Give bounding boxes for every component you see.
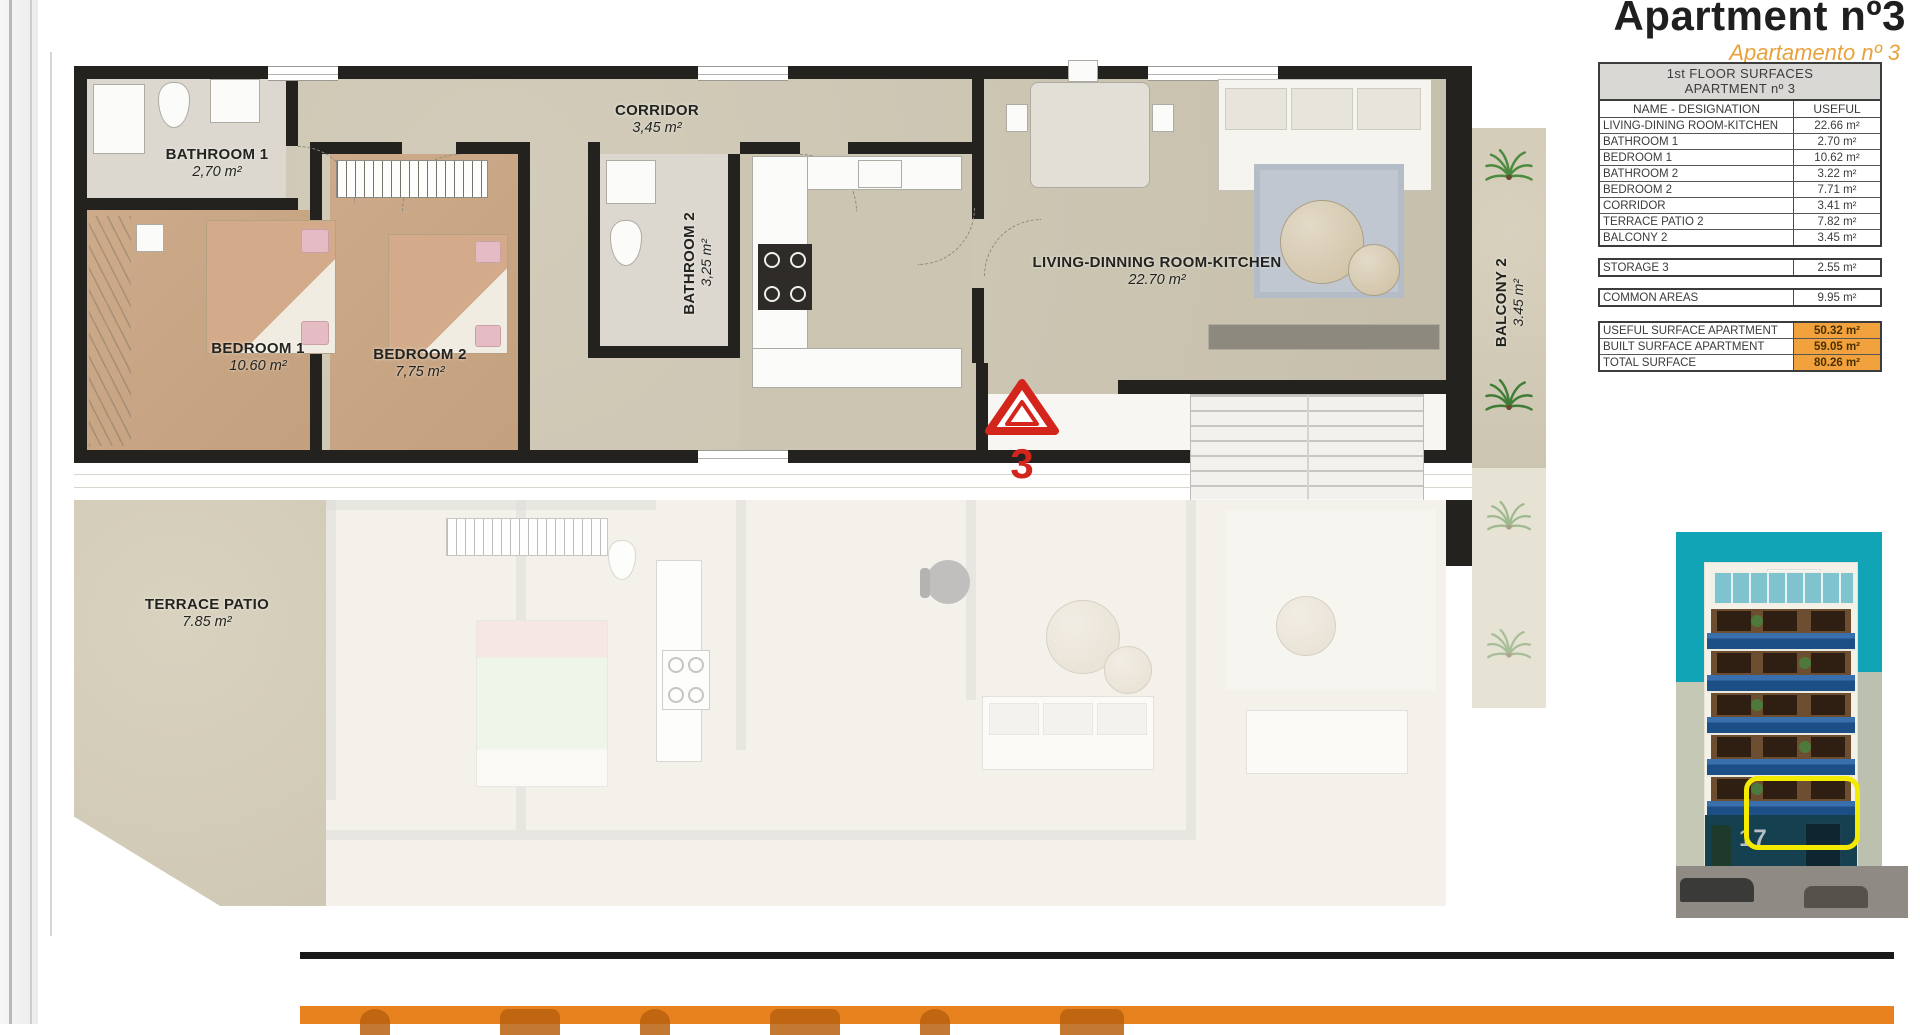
wall	[972, 288, 984, 363]
main-surface-table: 1st FLOOR SURFACES APARTMENT nº 3 NAME -…	[1598, 62, 1882, 247]
window	[268, 66, 338, 81]
chair	[1006, 104, 1028, 132]
table-row: STORAGE 32.55 m²	[1600, 260, 1880, 275]
wall	[848, 142, 972, 154]
table-row: TOTAL SURFACE80.26 m²	[1600, 355, 1880, 370]
kitchen-sink	[858, 160, 902, 188]
dining-table	[1030, 82, 1150, 188]
unit-marker: 3	[982, 378, 1062, 485]
wardrobe-icon	[336, 160, 488, 198]
bed-icon	[388, 234, 508, 354]
highlighted-unit-box	[1744, 776, 1860, 850]
footer-divider-bar	[300, 952, 1894, 959]
page-title: Apartment nº3	[1180, 0, 1906, 40]
table-row: TERRACE PATIO 27.82 m²	[1600, 214, 1880, 230]
table-row: BALCONY 23.45 m²	[1600, 230, 1880, 245]
trellis-hatch	[89, 216, 131, 446]
storage-table: STORAGE 32.55 m²	[1598, 258, 1882, 277]
sink-icon	[210, 79, 260, 123]
nightstand	[136, 224, 164, 252]
round-table	[1348, 244, 1400, 296]
room-label-bedroom1: BEDROOM 1 10.60 m²	[158, 340, 358, 374]
table-row: CORRIDOR3.41 m²	[1600, 198, 1880, 214]
wall	[740, 142, 800, 154]
plan-border-line	[50, 52, 52, 936]
wall	[322, 142, 402, 154]
storefront-plant	[1711, 825, 1731, 867]
neighbor-building	[1676, 682, 1704, 866]
footer-orange-strip	[300, 1006, 1894, 1024]
street	[1676, 866, 1908, 918]
wall	[588, 142, 600, 358]
kitchen-counter	[752, 348, 962, 388]
table-row: BUILT SURFACE APARTMENT59.05 m²	[1600, 339, 1880, 355]
room-label-terrace: TERRACE PATIO 7.85 m²	[102, 596, 312, 630]
table-row: LIVING-DINING ROOM-KITCHEN22.66 m²	[1600, 118, 1880, 134]
card-white-margin	[1882, 532, 1908, 918]
chair	[1152, 104, 1174, 132]
stove-icon	[758, 244, 812, 310]
palm-plant-icon	[1484, 500, 1534, 550]
lower-floor-ghost	[326, 500, 1446, 906]
header: Apartment nº3 Apartamento nº 3	[1180, 0, 1906, 66]
table-title: 1st FLOOR SURFACES APARTMENT nº 3	[1600, 64, 1880, 101]
common-areas-table: COMMON AREAS9.95 m²	[1598, 288, 1882, 307]
page-edge-strip	[0, 0, 38, 1024]
room-label-bathroom2: BATHROOM 2 3,25 m²	[670, 168, 724, 358]
surfaces-table: 1st FLOOR SURFACES APARTMENT nº 3 NAME -…	[1598, 62, 1882, 383]
table-row: USEFUL SURFACE APARTMENT50.32 m²	[1600, 323, 1880, 339]
chair	[1068, 60, 1098, 82]
table-row: BEDROOM 27.71 m²	[1600, 182, 1880, 198]
table-row: BEDROOM 110.62 m²	[1600, 150, 1880, 166]
palm-plant-icon	[1482, 148, 1536, 202]
room-label-corridor: CORRIDOR 3,45 m²	[567, 102, 747, 136]
room-label-bathroom1: BATHROOM 1 2,70 m²	[127, 146, 307, 180]
wall	[74, 198, 298, 210]
palm-plant-icon	[1484, 628, 1534, 678]
totals-table: USEFUL SURFACE APARTMENT50.32 m² BUILT S…	[1598, 321, 1882, 372]
table-row: COMMON AREAS9.95 m²	[1600, 290, 1880, 305]
sink-icon	[606, 160, 656, 204]
terrace-patio	[74, 500, 326, 906]
shower-tray	[93, 84, 145, 154]
roof-terrace	[1711, 571, 1855, 605]
table-column-headers: NAME - DESIGNATION USEFUL	[1600, 101, 1880, 118]
wall	[74, 66, 87, 463]
room-label-balcony2: BALCONY 2 3.45 m²	[1474, 203, 1544, 403]
wall	[728, 154, 740, 358]
triangle-marker-icon	[984, 378, 1060, 436]
floor-plan: BATHROOM 1 2,70 m² CORRIDOR 3,45 m² BEDR…	[58, 48, 1510, 918]
unit-number: 3	[982, 443, 1062, 485]
wall	[972, 79, 984, 219]
room-label-bedroom2: BEDROOM 2 7,75 m²	[330, 346, 510, 380]
page-edge-line	[9, 0, 12, 1024]
wall	[1118, 380, 1448, 394]
wall	[518, 142, 530, 462]
bed-icon	[206, 220, 336, 354]
sideboard	[1208, 324, 1440, 350]
page-edge-line	[30, 0, 32, 1024]
table-row: BATHROOM 12.70 m²	[1600, 134, 1880, 150]
building-elevation-image: 17	[1676, 532, 1908, 918]
table-row: BATHROOM 23.22 m²	[1600, 166, 1880, 182]
window	[698, 66, 788, 81]
room-label-living: LIVING-DINNING ROOM-KITCHEN 22.70 m²	[1002, 254, 1312, 288]
